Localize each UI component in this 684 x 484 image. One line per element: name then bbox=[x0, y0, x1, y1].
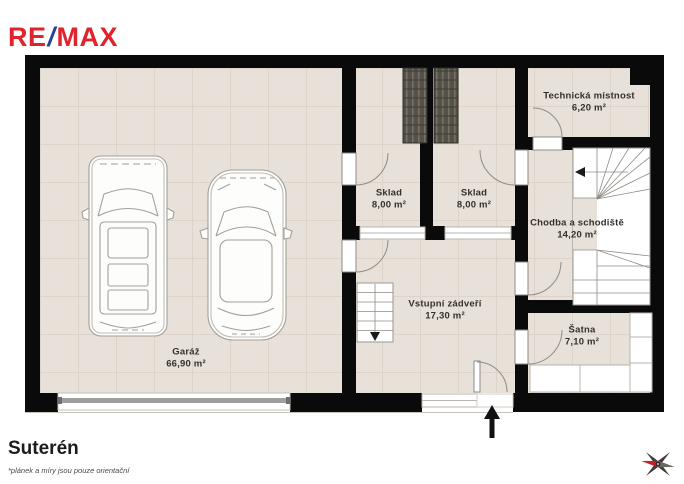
compass-icon bbox=[641, 452, 676, 476]
wall-bottom-mid bbox=[290, 393, 422, 412]
car-sedan-top-view bbox=[200, 170, 292, 340]
remax-logo: RE/MAX bbox=[8, 24, 118, 51]
wall-left bbox=[25, 55, 40, 412]
room-label-sklad2: Sklad 8,00 m² bbox=[457, 188, 491, 213]
door-garage-sklad1 bbox=[342, 153, 388, 185]
wall-sklad-bottom-1 bbox=[342, 226, 360, 240]
logo-max: MAX bbox=[57, 22, 119, 52]
room-label-vstupni: Vstupní zádveří 17,30 m² bbox=[408, 299, 481, 324]
car-mirror-icon bbox=[284, 228, 292, 239]
wall-tech-bottom-1 bbox=[515, 137, 533, 150]
logo-slash-icon: / bbox=[47, 22, 57, 52]
shelving-rack-2 bbox=[434, 68, 458, 143]
wall-garage-1 bbox=[342, 68, 356, 153]
wall-top bbox=[25, 55, 664, 68]
car-suv-top-view bbox=[82, 156, 174, 336]
door-sklad2-chodba bbox=[480, 150, 528, 185]
room-label-chodba: Chodba a schodiště 14,20 m² bbox=[530, 218, 624, 243]
wall-bottom-left bbox=[25, 393, 58, 412]
wall-bottom-right bbox=[513, 393, 664, 412]
floorplan-page: RE/MAX bbox=[0, 0, 684, 484]
wall-garage-3 bbox=[342, 272, 356, 393]
door-entry bbox=[474, 361, 507, 392]
car-mirror-icon bbox=[167, 208, 174, 220]
entrance-arrow-icon bbox=[484, 405, 500, 438]
page-title: Suterén bbox=[8, 438, 79, 460]
disclaimer-text: *plánek a míry jsou pouze orientační bbox=[8, 466, 129, 475]
stairs-vestibule bbox=[357, 283, 393, 342]
room-label-technicka: Technická místnost 6,20 m² bbox=[543, 91, 635, 116]
garage-door bbox=[58, 393, 290, 410]
entry-opening bbox=[477, 394, 513, 407]
car-mirror-icon bbox=[82, 208, 89, 220]
door-vestibule-satna bbox=[515, 330, 562, 364]
door-garage-vestibule bbox=[342, 240, 388, 272]
shelving-rack-1 bbox=[403, 68, 427, 143]
door-vestibule-chodba bbox=[515, 262, 561, 295]
wall-sklad-bottom-2 bbox=[425, 226, 445, 240]
doors bbox=[342, 108, 562, 392]
room-label-sklad1: Sklad 8,00 m² bbox=[372, 188, 406, 213]
room-label-garaz: Garáž 66,90 m² bbox=[166, 347, 206, 372]
wall-rightcol-4 bbox=[515, 364, 528, 393]
car-mirror-icon bbox=[200, 228, 208, 239]
logo-re: RE bbox=[8, 22, 47, 52]
wall-rightcol-2 bbox=[515, 185, 528, 262]
room-label-satna: Šatna 7,10 m² bbox=[565, 325, 599, 350]
